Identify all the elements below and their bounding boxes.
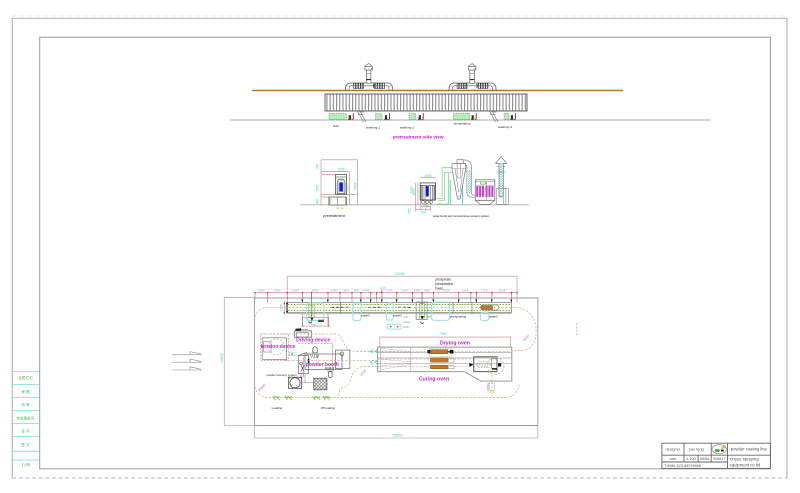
svg-text:3000: 3000 bbox=[311, 289, 318, 293]
svg-text:450: 450 bbox=[408, 208, 412, 214]
svg-text:designer: designer bbox=[666, 448, 681, 452]
svg-text:2038: 2038 bbox=[498, 289, 505, 293]
svg-text:Drying oven: Drying oven bbox=[440, 341, 470, 347]
svg-text:3350: 3350 bbox=[315, 184, 319, 191]
svg-text:tower: tower bbox=[435, 286, 444, 290]
svg-text:water: water bbox=[403, 320, 410, 324]
svg-text:hot: hot bbox=[403, 315, 407, 319]
svg-text:600: 600 bbox=[421, 210, 427, 214]
svg-text:1008: 1008 bbox=[337, 168, 344, 172]
svg-text:washing 1: washing 1 bbox=[366, 126, 380, 130]
svg-text:Off loading: Off loading bbox=[321, 406, 336, 410]
svg-text:phosphating: phosphating bbox=[454, 122, 471, 126]
svg-text:1700: 1700 bbox=[291, 289, 298, 293]
svg-text:pretreatment: pretreatment bbox=[323, 214, 345, 218]
svg-text:phosphate: phosphate bbox=[435, 278, 451, 282]
svg-text:spray booth and monocyclone re: spray booth and monocyclone recovery sys… bbox=[433, 214, 490, 218]
svg-text:有关图纸号: 有关图纸号 bbox=[17, 416, 35, 421]
svg-text:rate: rate bbox=[670, 457, 677, 461]
svg-text:350: 350 bbox=[315, 164, 319, 170]
svg-text:powder recovery system: powder recovery system bbox=[266, 373, 297, 377]
svg-text:2250: 2250 bbox=[273, 289, 280, 293]
svg-text:1500: 1500 bbox=[257, 289, 264, 293]
svg-text:5250: 5250 bbox=[487, 383, 491, 391]
svg-text:wash1: wash1 bbox=[361, 313, 370, 317]
svg-text:skim: skim bbox=[333, 124, 340, 128]
svg-text:日 期: 日 期 bbox=[21, 462, 30, 467]
svg-text:tank: tank bbox=[403, 325, 409, 329]
svg-text:800: 800 bbox=[343, 289, 349, 293]
svg-text:800: 800 bbox=[354, 289, 360, 293]
svg-text:800: 800 bbox=[424, 289, 430, 293]
svg-text:Driving device: Driving device bbox=[296, 337, 330, 343]
svg-text:Loading: Loading bbox=[272, 406, 283, 410]
svg-text:会签栏记: 会签栏记 bbox=[18, 375, 33, 380]
svg-text:washing 3: washing 3 bbox=[498, 125, 512, 129]
svg-text:1500: 1500 bbox=[413, 289, 420, 293]
svg-text:签 字: 签 字 bbox=[21, 429, 30, 434]
svg-text:powder booth: powder booth bbox=[306, 362, 339, 368]
svg-text:xinyue spraying: xinyue spraying bbox=[730, 457, 760, 462]
svg-text:1450: 1450 bbox=[330, 289, 337, 293]
svg-text:pretreatment side view: pretreatment side view bbox=[393, 134, 444, 140]
svg-text:1715: 1715 bbox=[480, 289, 487, 293]
svg-text:1216: 1216 bbox=[461, 289, 468, 293]
svg-text:Curing oven: Curing oven bbox=[419, 376, 449, 382]
svg-text:75000: 75000 bbox=[391, 432, 403, 437]
svg-text:2554: 2554 bbox=[442, 289, 449, 293]
svg-text:phosphating: phosphating bbox=[450, 315, 467, 319]
svg-text:审 图: 审 图 bbox=[21, 389, 30, 394]
svg-text:1445: 1445 bbox=[362, 289, 369, 293]
svg-text:500: 500 bbox=[311, 324, 317, 328]
svg-text:1230: 1230 bbox=[400, 289, 407, 293]
svg-text:wash3: wash3 bbox=[489, 315, 498, 319]
svg-text:校 审: 校 审 bbox=[21, 402, 30, 407]
svg-text:15000: 15000 bbox=[220, 353, 224, 364]
svg-text:wash2: wash2 bbox=[393, 313, 402, 317]
svg-text:tension device: tension device bbox=[261, 344, 296, 350]
svg-text:washing 2: washing 2 bbox=[400, 126, 414, 130]
svg-text:3008: 3008 bbox=[424, 174, 431, 178]
svg-text:T:0086-523-88759666: T:0086-523-88759666 bbox=[664, 464, 701, 468]
svg-text:1:100: 1:100 bbox=[686, 457, 696, 461]
svg-text:1700: 1700 bbox=[385, 289, 392, 293]
svg-text:equipment co.ltd: equipment co.ltd bbox=[730, 462, 761, 467]
svg-text:005617: 005617 bbox=[713, 457, 726, 461]
svg-text:800: 800 bbox=[315, 199, 319, 205]
svg-text:1950: 1950 bbox=[412, 188, 416, 195]
svg-text:06/5d: 06/5d bbox=[700, 457, 710, 461]
svg-text:7300: 7300 bbox=[439, 332, 447, 336]
svg-text:jiao feng: jiao feng bbox=[688, 448, 703, 452]
svg-text:3508: 3508 bbox=[353, 182, 357, 189]
svg-text:签 字: 签 字 bbox=[21, 442, 30, 447]
svg-text:24254: 24254 bbox=[395, 272, 405, 276]
svg-text:powder coating line: powder coating line bbox=[731, 447, 768, 452]
svg-text:precipitation: precipitation bbox=[435, 282, 453, 286]
